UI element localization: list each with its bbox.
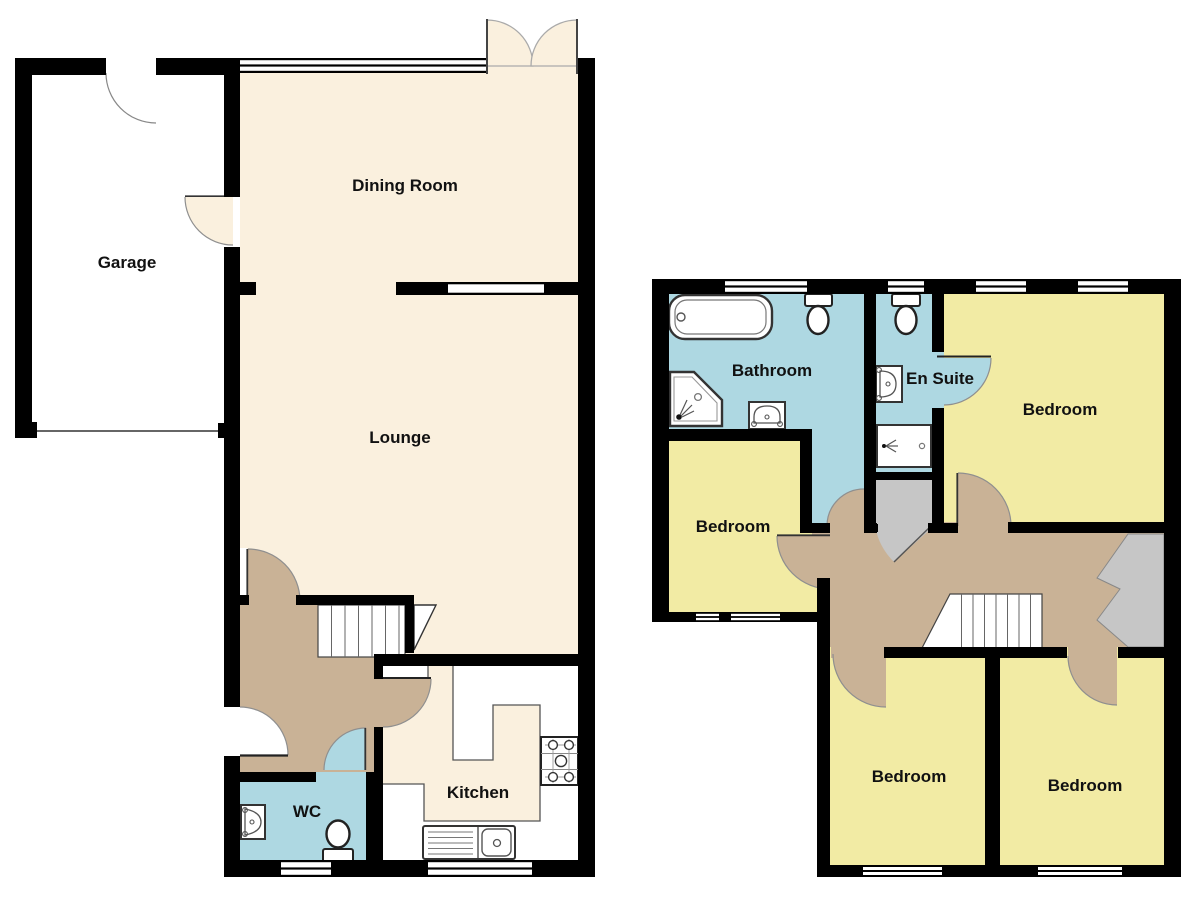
svg-text:WC: WC bbox=[293, 802, 321, 821]
svg-text:Bathroom: Bathroom bbox=[732, 361, 812, 380]
svg-text:Garage: Garage bbox=[98, 253, 157, 272]
svg-text:En Suite: En Suite bbox=[906, 369, 974, 388]
svg-text:Bedroom: Bedroom bbox=[872, 767, 947, 786]
svg-text:Lounge: Lounge bbox=[369, 428, 430, 447]
svg-text:Dining Room: Dining Room bbox=[352, 176, 458, 195]
svg-text:Bedroom: Bedroom bbox=[1023, 400, 1098, 419]
svg-text:Bedroom: Bedroom bbox=[1048, 776, 1123, 795]
svg-text:Bedroom: Bedroom bbox=[696, 517, 771, 536]
svg-text:Kitchen: Kitchen bbox=[447, 783, 509, 802]
